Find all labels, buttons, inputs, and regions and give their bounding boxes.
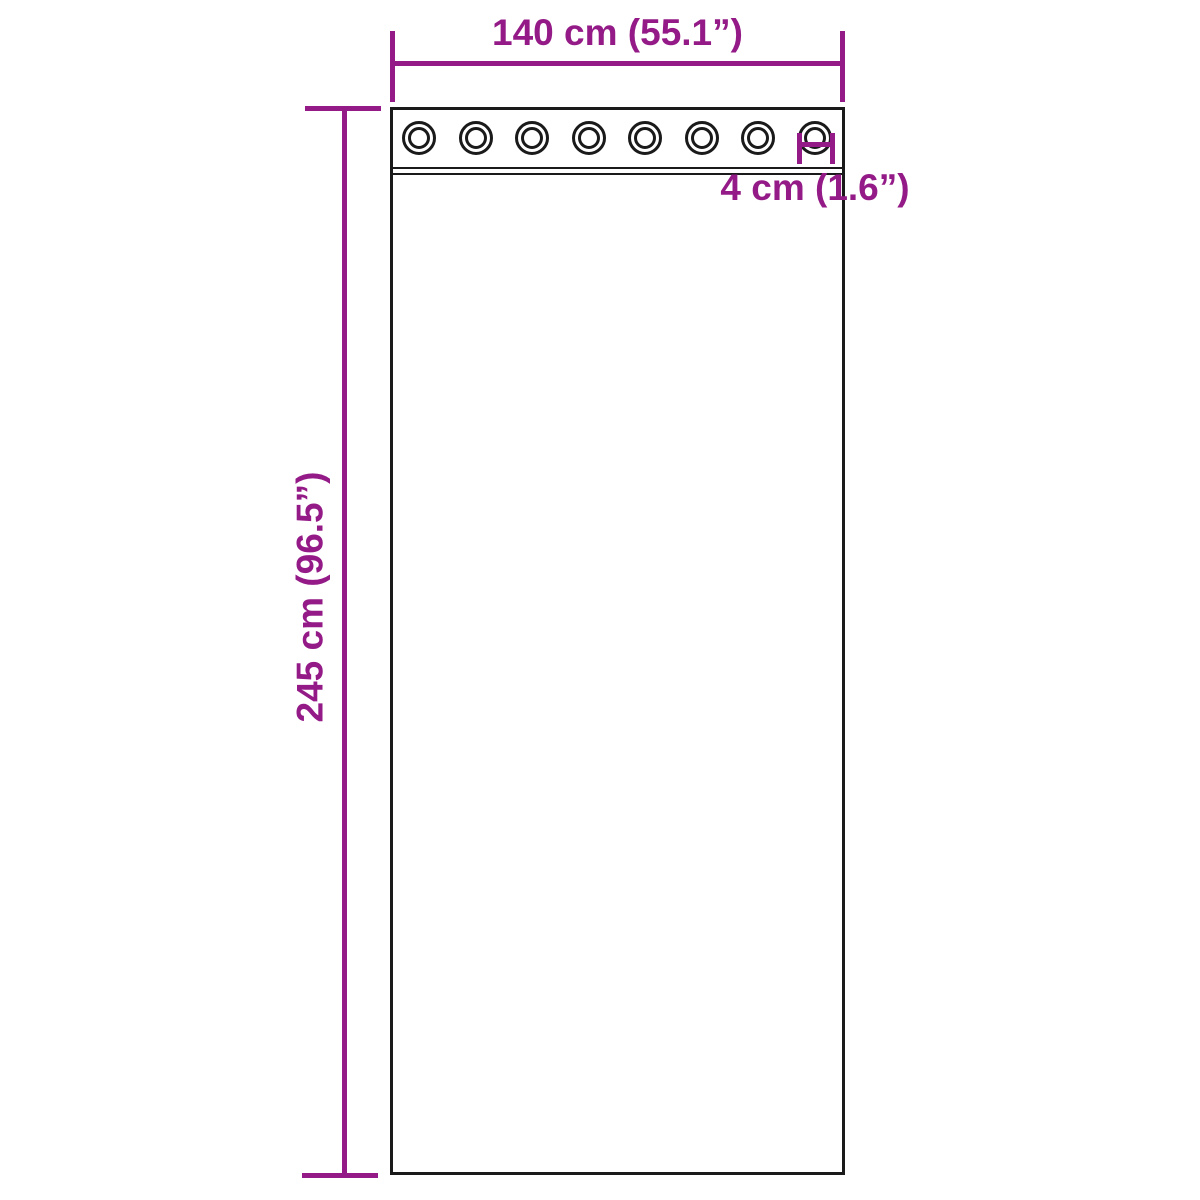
- width-dimension-label: 140 cm (55.1”): [392, 13, 843, 54]
- dimension-diagram: 140 cm (55.1”) 245 cm (96.5”) 4 cm (1.6”…: [0, 0, 1200, 1200]
- grommet-ring-icon: [515, 121, 549, 155]
- width-dimension-line: [392, 61, 843, 66]
- grommet-dimension-label: 4 cm (1.6”): [665, 168, 965, 209]
- grommet-hole-icon: [465, 127, 487, 149]
- grommet-ring-icon: [798, 121, 832, 155]
- grommet-ring-icon: [685, 121, 719, 155]
- grommet-hole-icon: [578, 127, 600, 149]
- grommet-dimension-bar: [797, 142, 835, 147]
- grommet-hole-icon: [408, 127, 430, 149]
- grommet-ring-icon: [459, 121, 493, 155]
- grommet-dimension-tick-left: [797, 133, 802, 164]
- height-dimension-line: [342, 106, 347, 1178]
- grommet-ring-icon: [572, 121, 606, 155]
- grommet-ring-icon: [402, 121, 436, 155]
- grommet-hole-icon: [691, 127, 713, 149]
- grommet-hole-icon: [747, 127, 769, 149]
- height-dimension-label: 245 cm (96.5”): [291, 472, 332, 723]
- grommet-hole-icon: [634, 127, 656, 149]
- grommet-dimension-tick-right: [830, 133, 835, 164]
- grommet-hole-icon: [521, 127, 543, 149]
- height-dimension-tick-top: [305, 106, 381, 111]
- curtain-panel-outline: [390, 107, 845, 1175]
- height-dimension-tick-bottom: [302, 1173, 378, 1178]
